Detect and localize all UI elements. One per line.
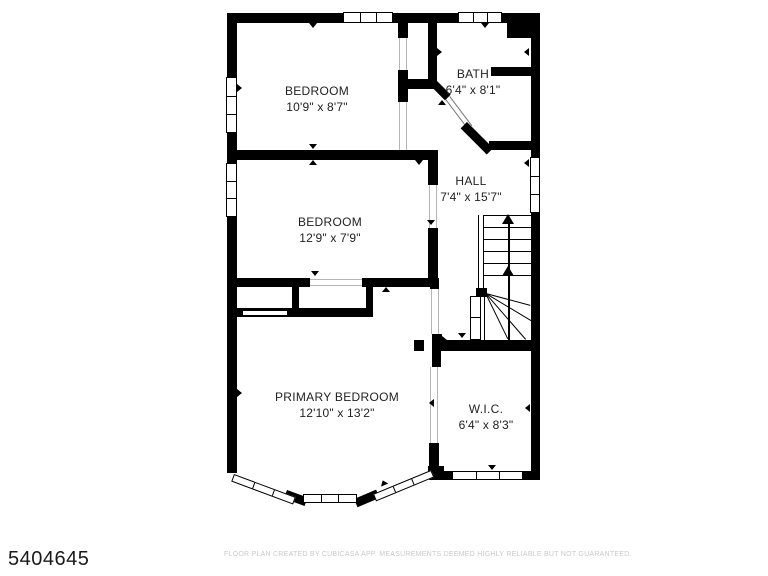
measure-marker	[442, 336, 447, 344]
exterior-wall-top-a	[227, 13, 343, 23]
bay-window-center	[303, 494, 357, 503]
room-dimensions: 10'9" x 8'7"	[207, 99, 427, 115]
opening-line	[310, 285, 362, 286]
primary-door-wall-a	[430, 278, 439, 289]
measure-marker	[438, 100, 446, 105]
window-wic-bottom	[452, 471, 523, 480]
measure-marker	[379, 479, 388, 487]
measure-marker	[524, 159, 529, 167]
disclaimer-text: FLOOR PLAN CREATED BY CUBICASA APP. MEAS…	[224, 551, 632, 558]
measure-marker	[415, 160, 423, 165]
measure-marker	[382, 287, 390, 292]
room-label-hall: HALL 7'4" x 15'7"	[361, 173, 581, 205]
room-name: BATH	[363, 66, 583, 82]
measure-marker	[311, 271, 319, 276]
window-top-bedroom	[343, 12, 393, 23]
bedroom-middle-wall-bottom-b	[362, 278, 438, 287]
measure-marker	[309, 160, 317, 165]
bath-door-swing-line	[449, 96, 472, 126]
room-label-bath: BATH 6'4" x 8'1"	[363, 66, 583, 98]
measure-marker	[437, 48, 442, 56]
exterior-wall-top-b	[393, 13, 458, 23]
wic-wall-left-top	[432, 351, 441, 367]
stair-direction-line	[508, 222, 510, 340]
opening-line	[438, 289, 439, 334]
measure-marker	[458, 333, 466, 338]
room-name: W.I.C.	[376, 401, 596, 417]
stair-up-arrow	[502, 266, 514, 276]
room-label-bedroom-middle: BEDROOM 12'9" x 7'9"	[220, 214, 440, 246]
measure-marker	[309, 23, 317, 28]
room-name: HALL	[361, 173, 581, 189]
opening-line	[431, 289, 432, 334]
measure-marker	[481, 23, 489, 28]
stair-up-arrow	[502, 214, 514, 224]
stair-edge-line	[484, 288, 485, 340]
room-dimensions: 6'4" x 8'1"	[363, 82, 583, 98]
floor-plan: BEDROOM 10'9" x 8'7" BATH 6'4" x 8'1" BE…	[0, 0, 768, 576]
bedroom-top-wall-bottom	[227, 150, 438, 160]
winder-tread-box	[470, 296, 481, 340]
stairs-wall-bottom	[414, 340, 540, 351]
closet-wall-stub-top	[398, 23, 408, 38]
room-label-wic: W.I.C. 6'4" x 8'3"	[376, 401, 596, 433]
wall-slot	[424, 340, 432, 351]
room-dimensions: 7'4" x 15'7"	[361, 189, 581, 205]
room-dimensions: 12'9" x 7'9"	[220, 230, 440, 246]
measure-marker	[488, 465, 496, 470]
listing-id: 5404645	[8, 548, 89, 571]
window-left-bedroom-middle	[226, 163, 237, 217]
winder-tread-divider	[470, 317, 481, 318]
bedroom-middle-wall-bottom-a	[227, 278, 310, 287]
room-dimensions: 6'4" x 8'3"	[376, 417, 596, 433]
opening-line	[310, 279, 362, 280]
closet-sliding-door	[243, 310, 287, 316]
measure-marker	[309, 144, 317, 149]
bath-wall-bottom	[489, 141, 533, 150]
closet2-wall-right	[366, 287, 373, 308]
measure-marker	[524, 48, 529, 56]
room-name: BEDROOM	[220, 214, 440, 230]
measure-marker	[482, 149, 490, 154]
window-top-bath	[458, 12, 502, 23]
